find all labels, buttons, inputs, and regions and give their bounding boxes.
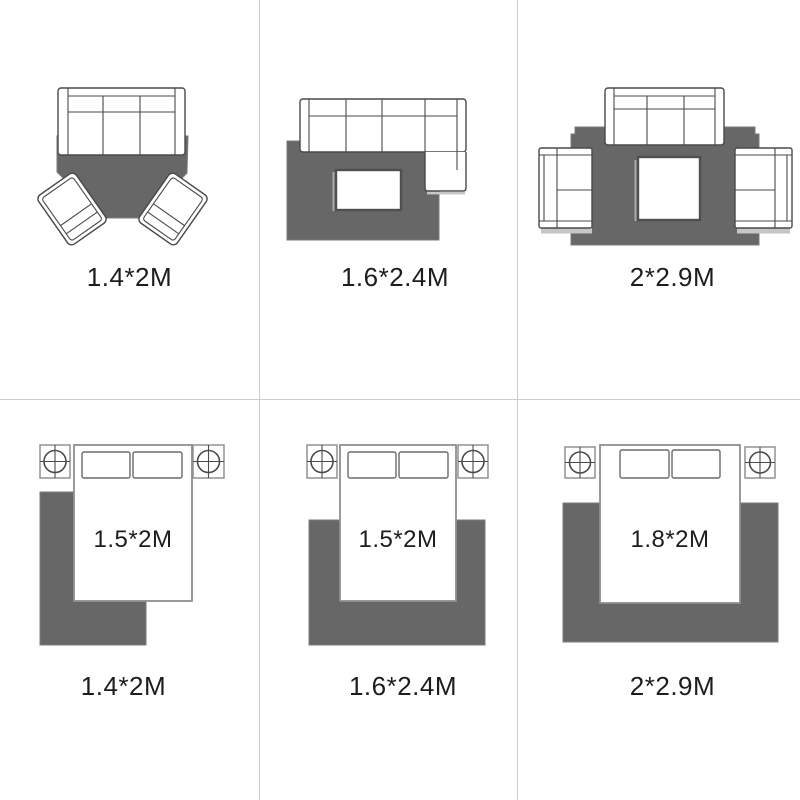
- rug-size-guide: 1.4*2M 1.6*2.4M: [0, 0, 800, 800]
- bedroom-3-plan: [517, 400, 800, 800]
- pillow-left: [348, 452, 396, 478]
- pillow-right: [672, 450, 720, 478]
- bed-size-label: 1.5*2M: [74, 527, 192, 553]
- panel-bedroom-2: 1.5*2M 1.6*2.4M: [259, 400, 517, 800]
- chaise: [425, 152, 466, 191]
- three-seat-sofa: [58, 88, 185, 155]
- bedroom-1-plan: [0, 400, 259, 800]
- nightstand-right: [458, 445, 488, 478]
- pillow-left: [620, 450, 669, 478]
- panel-living-2: 1.6*2.4M: [259, 0, 517, 400]
- bedroom-2-plan: [259, 400, 517, 800]
- bed-size-label: 1.8*2M: [600, 527, 740, 553]
- pillow-right: [133, 452, 182, 478]
- panel-bedroom-3: 1.8*2M 2*2.9M: [517, 400, 800, 800]
- loveseat-left: [539, 148, 592, 234]
- rug-size-caption: 1.6*2.4M: [266, 263, 524, 291]
- rug-size-caption: 2*2.9M: [531, 672, 800, 700]
- pillow-left: [82, 452, 130, 478]
- nightstand-right: [745, 447, 775, 478]
- panel-living-3: 2*2.9M: [517, 0, 800, 400]
- living-1-plan: [0, 0, 259, 400]
- coffee-table: [334, 170, 402, 211]
- rug-size-caption: 1.4*2M: [0, 263, 259, 291]
- bed: [74, 445, 192, 601]
- nightstand-left: [565, 447, 595, 478]
- nightstand-left: [40, 445, 70, 478]
- bed-size-label: 1.5*2M: [340, 527, 456, 553]
- living-3-plan: [517, 0, 800, 400]
- square-coffee-table: [636, 157, 701, 221]
- rug-size-caption: 2*2.9M: [531, 263, 800, 291]
- chaise-shadow: [427, 192, 465, 195]
- panel-bedroom-1: 1.5*2M 1.4*2M: [0, 400, 259, 800]
- panel-living-1: 1.4*2M: [0, 0, 259, 400]
- bed: [600, 445, 740, 603]
- nightstand-right: [193, 445, 224, 478]
- bed: [340, 445, 456, 601]
- pillow-right: [399, 452, 448, 478]
- living-2-plan: [259, 0, 517, 400]
- three-seat-sofa: [605, 88, 724, 145]
- rug-size-caption: 1.6*2.4M: [274, 672, 532, 700]
- rug-size-caption: 1.4*2M: [0, 672, 253, 700]
- loveseat-right: [735, 148, 792, 234]
- nightstand-left: [307, 445, 337, 478]
